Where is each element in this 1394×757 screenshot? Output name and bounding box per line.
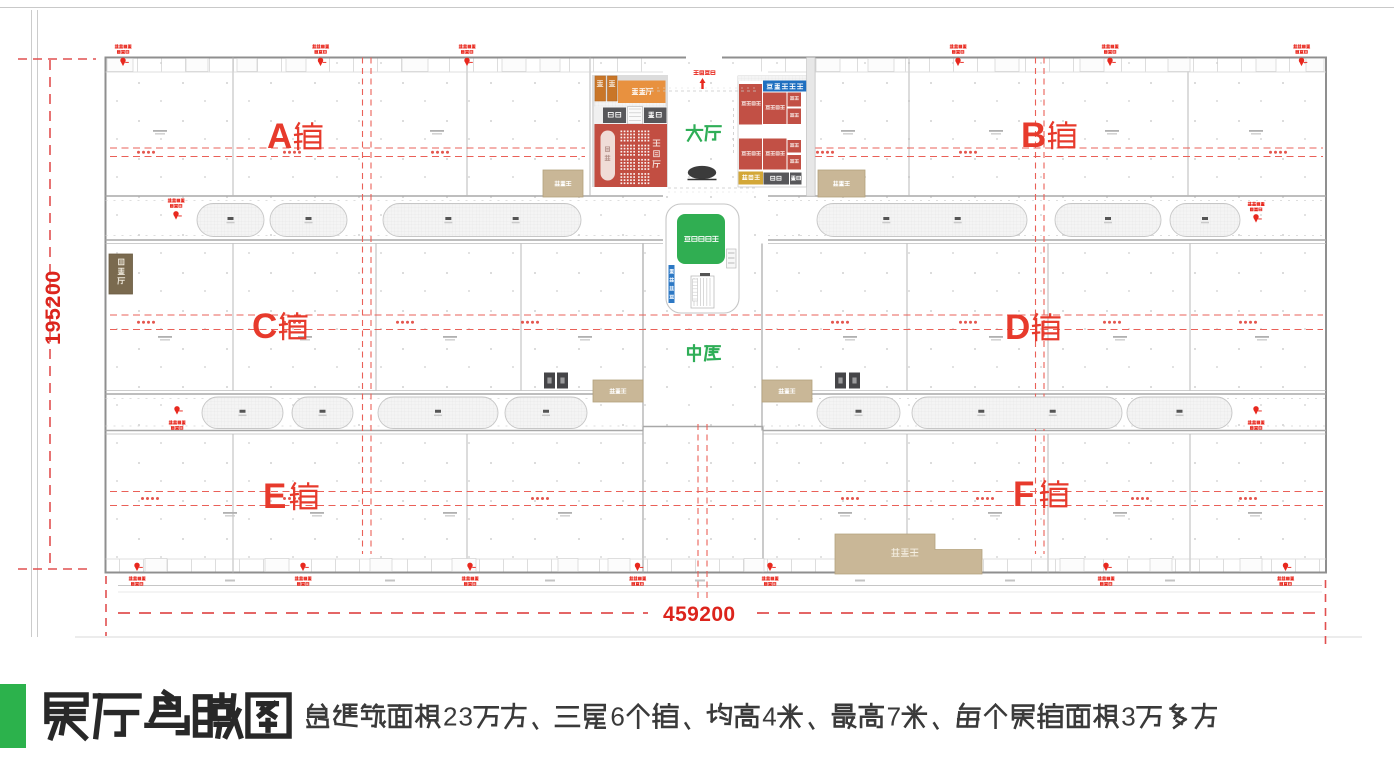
svg-text:4: 4: [762, 702, 776, 732]
svg-text:F: F: [1013, 475, 1034, 514]
svg-text:B: B: [1021, 116, 1046, 155]
svg-text:3: 3: [1121, 702, 1135, 732]
svg-text:A: A: [267, 117, 292, 156]
svg-text:C: C: [252, 307, 277, 346]
svg-text:7: 7: [887, 702, 901, 732]
svg-text:459200: 459200: [663, 603, 735, 626]
svg-text:2: 2: [443, 702, 457, 732]
svg-text:195200: 195200: [41, 270, 65, 345]
svg-text:3: 3: [458, 702, 472, 732]
svg-text:D: D: [1005, 308, 1030, 347]
svg-text:E: E: [263, 477, 286, 516]
svg-text:6: 6: [610, 702, 624, 732]
